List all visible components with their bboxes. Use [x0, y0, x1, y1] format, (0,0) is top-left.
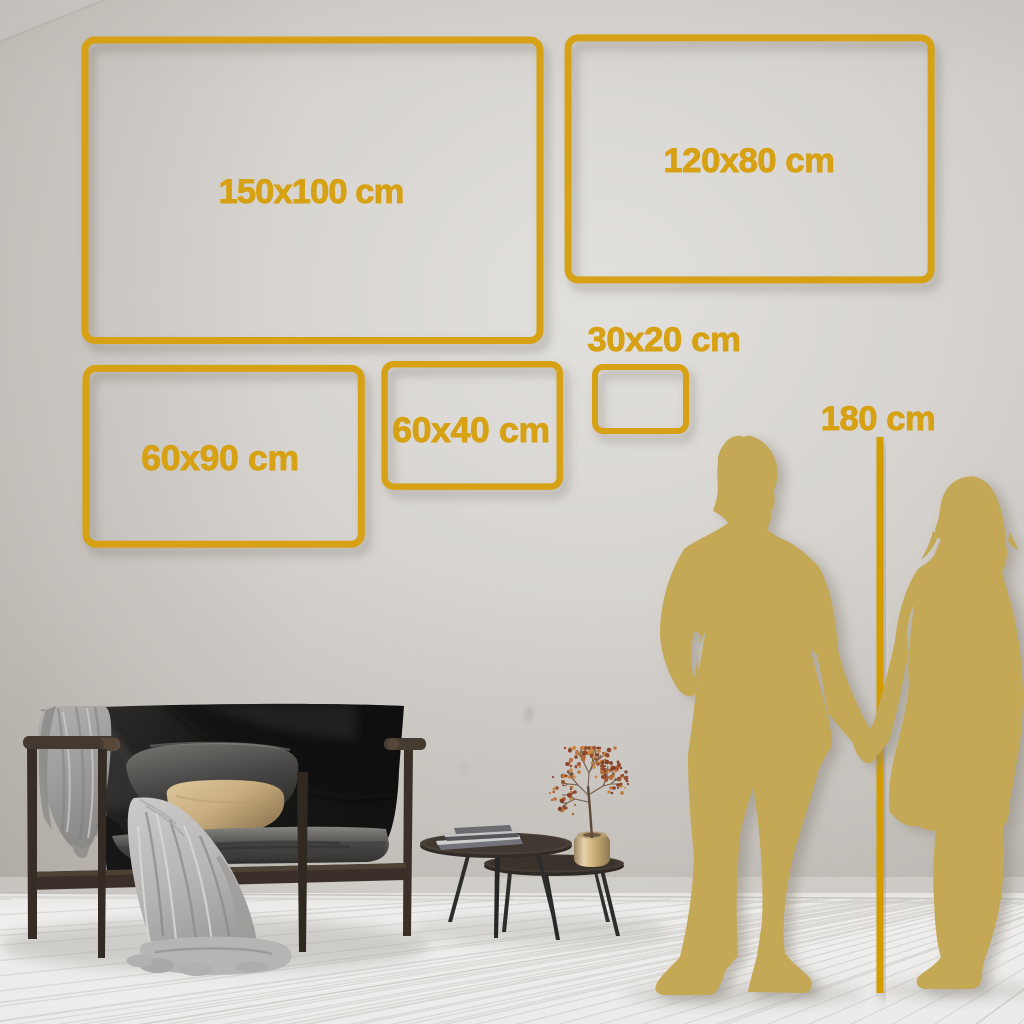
svg-text:150x100 cm: 150x100 cm [219, 173, 404, 211]
svg-text:60x40 cm: 60x40 cm [392, 410, 550, 450]
svg-text:30x20 cm: 30x20 cm [588, 321, 741, 359]
svg-text:60x90 cm: 60x90 cm [141, 438, 299, 478]
svg-text:120x80 cm: 120x80 cm [664, 142, 835, 180]
svg-text:180 cm: 180 cm [821, 400, 936, 438]
